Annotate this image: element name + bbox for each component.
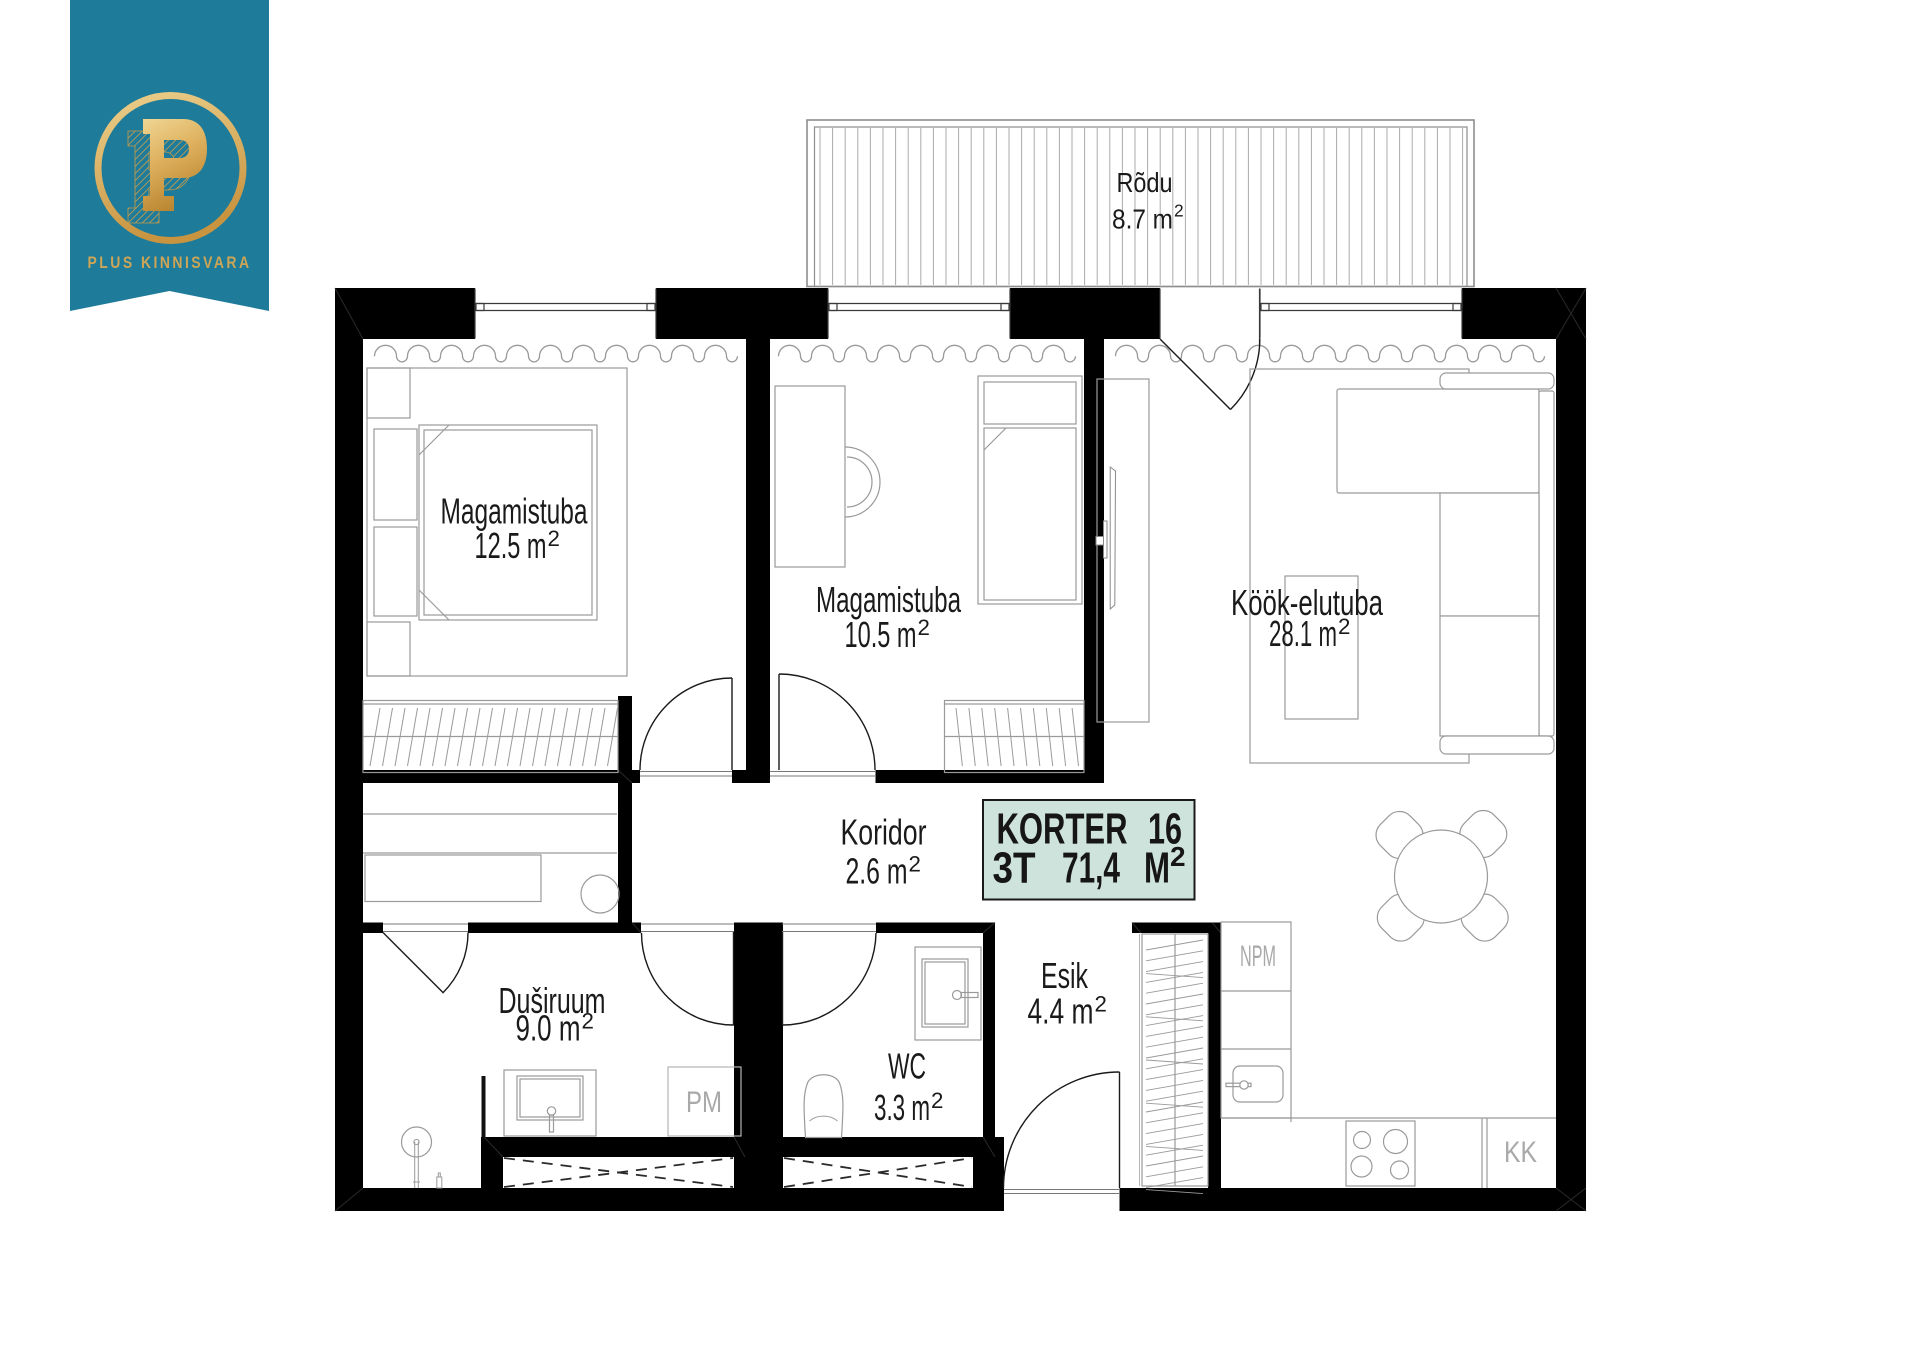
svg-text:2: 2 — [1338, 614, 1350, 639]
svg-text:2: 2 — [1174, 201, 1184, 221]
svg-text:28.1 m: 28.1 m — [1269, 613, 1337, 654]
svg-text:WC: WC — [888, 1046, 926, 1087]
svg-text:8.7 m: 8.7 m — [1112, 204, 1173, 235]
svg-text:NPM: NPM — [1240, 940, 1276, 973]
svg-text:2: 2 — [909, 852, 921, 877]
svg-text:2: 2 — [931, 1088, 943, 1113]
svg-text:12.5 m: 12.5 m — [475, 525, 547, 566]
svg-text:2: 2 — [918, 615, 930, 640]
svg-text:2: 2 — [1170, 841, 1186, 872]
svg-text:2: 2 — [582, 1009, 594, 1034]
svg-text:2: 2 — [1095, 992, 1107, 1017]
svg-text:Koridor: Koridor — [841, 812, 927, 853]
svg-text:PM: PM — [686, 1086, 722, 1119]
svg-text:2: 2 — [548, 526, 560, 551]
svg-text:Rõdu: Rõdu — [1117, 167, 1173, 198]
svg-text:71,4: 71,4 — [1062, 844, 1120, 893]
svg-text:10.5 m: 10.5 m — [845, 614, 917, 655]
svg-text:KK: KK — [1504, 1136, 1537, 1169]
svg-text:3T: 3T — [993, 844, 1036, 893]
svg-text:2.6 m: 2.6 m — [846, 851, 908, 892]
svg-text:3.3 m: 3.3 m — [874, 1087, 930, 1128]
svg-text:M: M — [1144, 844, 1170, 893]
svg-text:9.0 m: 9.0 m — [516, 1008, 581, 1049]
svg-text:PLUS KINNISVARA: PLUS KINNISVARA — [88, 253, 252, 272]
svg-text:4.4 m: 4.4 m — [1028, 991, 1094, 1032]
